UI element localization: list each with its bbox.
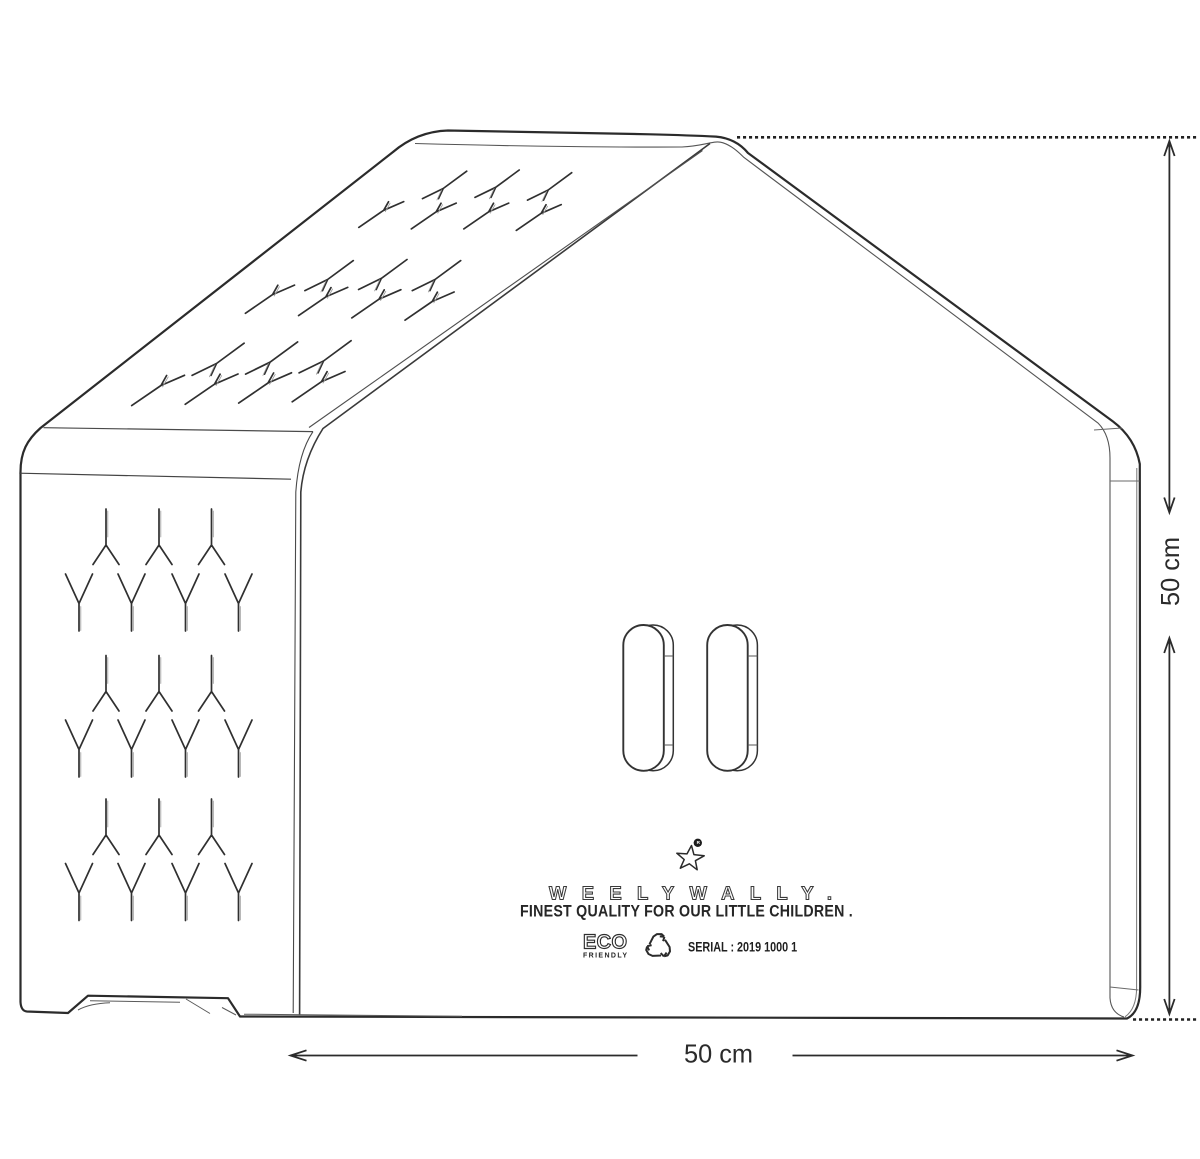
svg-text:WEELYWALLY.: WEELYWALLY.	[549, 883, 832, 904]
svg-text:50 cm: 50 cm	[684, 1039, 753, 1069]
svg-text:SERIAL : 2019 1000 1: SERIAL : 2019 1000 1	[688, 939, 797, 955]
svg-text:ECO: ECO	[583, 932, 627, 954]
svg-text:50 cm: 50 cm	[1155, 537, 1185, 606]
svg-text:FRIENDLY: FRIENDLY	[583, 953, 627, 960]
svg-text:FINEST QUALITY FOR OUR LITTLE: FINEST QUALITY FOR OUR LITTLE CHILDREN .	[520, 902, 853, 920]
